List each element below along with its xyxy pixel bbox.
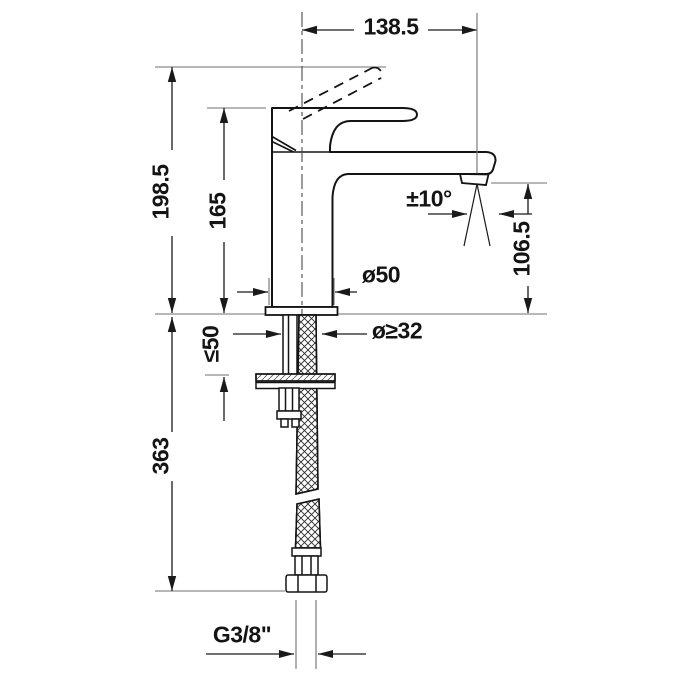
hose-fitting-body: [295, 556, 318, 575]
hose-crimp-collar: [292, 548, 321, 556]
technical-drawing-canvas: 138.5 198.5 165 ±10° 106.5 ø50 ø≥32 ≤50 …: [0, 0, 700, 700]
dim-label-spout-reach: 138.5: [363, 16, 418, 39]
dim-label-outlet-height: 106.5: [511, 221, 534, 276]
faucet-line-drawing: [0, 0, 700, 700]
fixing-nut-foot-right: [292, 419, 299, 427]
mounting-gasket-hatch: [256, 374, 335, 381]
dim-label-hole-diameter: ø≥32: [372, 320, 422, 343]
dim-label-connection-thread: G3/8": [213, 624, 271, 647]
aerator-outlet: [460, 174, 489, 185]
spray-angle-lines: [464, 184, 490, 246]
hose-lower: [296, 499, 321, 548]
dimension-lines: [172, 30, 532, 654]
hose-hex-nut: [286, 575, 327, 592]
dim-label-deck-thickness: ≤50: [200, 326, 223, 363]
fixing-nut-foot-left: [281, 419, 288, 427]
dim-label-handle-height: 165: [207, 193, 230, 230]
dim-label-spout-angle: ±10°: [406, 188, 451, 211]
fixing-nut: [279, 388, 299, 411]
dim-label-body-diameter: ø50: [362, 264, 400, 287]
dim-label-total-height: 198.5: [150, 164, 173, 219]
installation-parts-group: [256, 315, 335, 592]
threaded-shank: [283, 315, 297, 375]
fixing-nut-flange: [277, 411, 301, 419]
dim-label-hose-length: 363: [150, 438, 173, 475]
